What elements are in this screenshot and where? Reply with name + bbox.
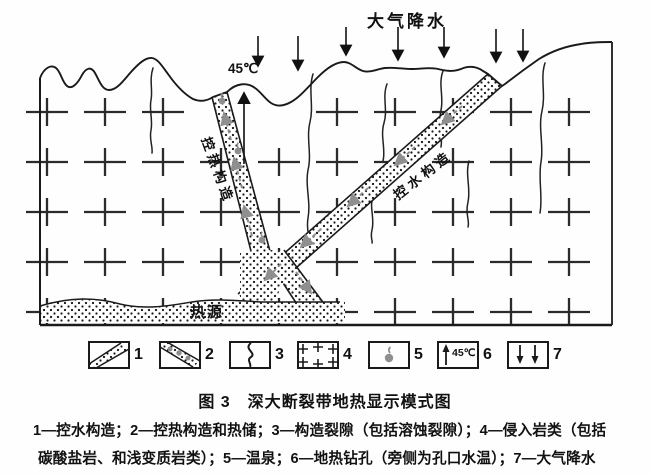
legend-number: 4 <box>343 346 352 364</box>
geological-cross-section <box>0 0 650 338</box>
precipitation-label: 大气降水 <box>362 7 452 32</box>
legend-row: 1 2 3 4 <box>0 341 650 373</box>
water-structure-band-icon <box>88 341 130 371</box>
precipitation-arrows-icon <box>507 341 549 371</box>
fissure-wavy-line-icon <box>229 341 271 371</box>
legend-number: 1 <box>134 346 143 364</box>
legend-number: 7 <box>553 346 562 364</box>
legend-number: 3 <box>275 346 284 364</box>
legend-number: 5 <box>414 346 423 364</box>
legend-number: 2 <box>205 346 214 364</box>
legend-description-line1: 1—控水构造；2—控热构造和热储；3—构造裂隙（包括溶蚀裂隙）；4—侵入岩类（包… <box>33 419 633 440</box>
terrain-surface-line <box>40 42 612 106</box>
section-frame <box>40 42 612 325</box>
hot-spring-droplet-icon <box>368 341 410 371</box>
legend-borehole-temp: 45℃ <box>452 347 476 359</box>
heat-structure-band-icon <box>159 341 201 371</box>
legend-description-line2: 碳酸盐岩、和浅变质岩类）；5—温泉；6—地热钻孔（旁侧为孔口水温）；7—大气降水 <box>38 447 638 468</box>
figure-page: 大气降水 45℃ 控热构造 控水构造 热源 1 2 <box>0 0 650 475</box>
plus-signs-icon <box>297 341 339 371</box>
legend-number: 6 <box>483 346 492 364</box>
borehole-arrow-icon: 45℃ <box>437 341 479 371</box>
figure-caption: 图 3 深大断裂带地热显示模式图 <box>0 388 650 412</box>
heat-source-label: 热源 <box>190 301 224 322</box>
borehole-temperature-label: 45℃ <box>228 61 258 77</box>
precipitation-arrows <box>258 27 523 70</box>
